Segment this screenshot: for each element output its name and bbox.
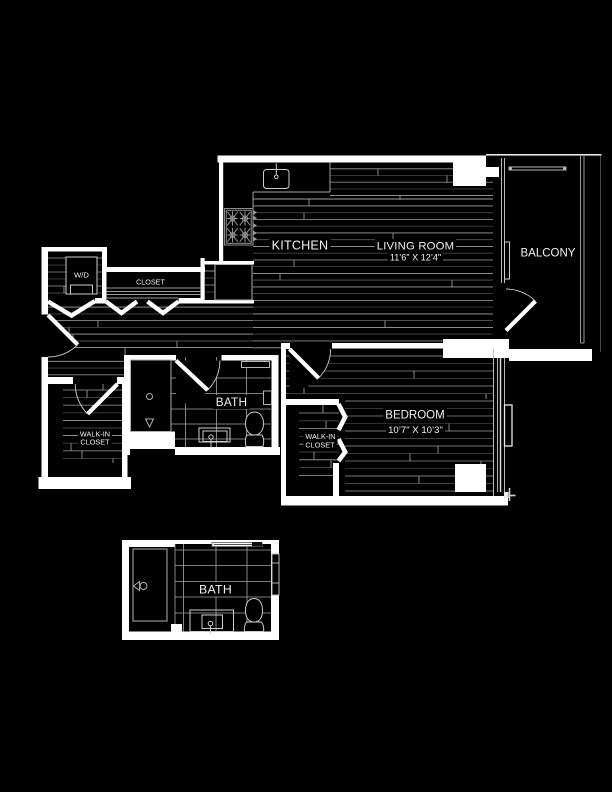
- svg-text:CLOSET: CLOSET: [80, 438, 110, 447]
- svg-text:10’7" X 10’3": 10’7" X 10’3": [388, 425, 443, 436]
- svg-text:LIVING ROOM: LIVING ROOM: [377, 241, 455, 253]
- svg-text:BALCONY: BALCONY: [521, 248, 576, 260]
- svg-text:KITCHEN: KITCHEN: [272, 239, 329, 253]
- svg-text:BATH: BATH: [216, 395, 247, 409]
- svg-text:W/D: W/D: [74, 271, 89, 280]
- svg-text:BEDROOM: BEDROOM: [385, 410, 444, 422]
- svg-text:CLOSET: CLOSET: [136, 278, 165, 287]
- svg-text:CLOSET: CLOSET: [305, 441, 335, 450]
- svg-text:11’6" X 12’4": 11’6" X 12’4": [390, 253, 441, 263]
- svg-text:BATH: BATH: [199, 583, 232, 597]
